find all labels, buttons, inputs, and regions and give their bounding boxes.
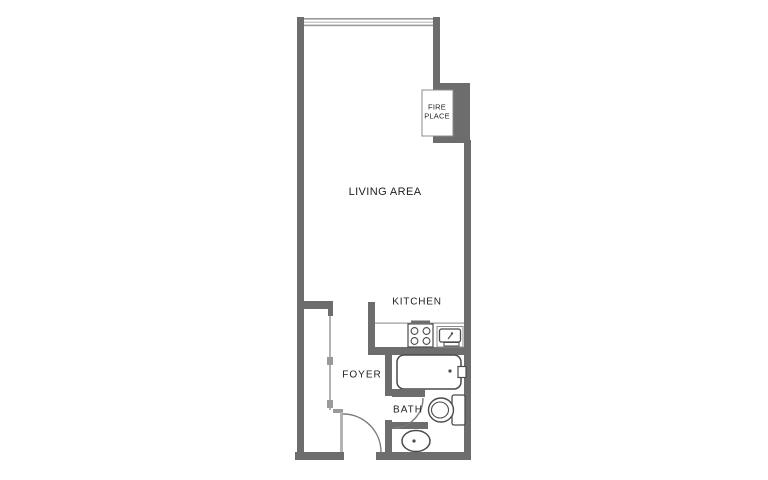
right-wall-upper bbox=[433, 17, 440, 85]
sink-front-ledge bbox=[444, 343, 459, 347]
entry-door-arc bbox=[343, 414, 381, 452]
closet-door-tab-upper bbox=[327, 357, 333, 365]
stove-icon bbox=[408, 321, 433, 348]
left-wall bbox=[297, 17, 304, 460]
bathtub-body bbox=[397, 355, 461, 389]
living-foyer-wall bbox=[297, 301, 333, 309]
floor-plan-drawing bbox=[0, 0, 768, 480]
fireplace-label: FIRE PLACE bbox=[424, 104, 450, 121]
bathroom bbox=[392, 355, 466, 452]
bathtub-faucet bbox=[458, 367, 466, 378]
living-foyer-wall-cap bbox=[328, 309, 333, 316]
foyer-label: FOYER bbox=[342, 370, 381, 381]
closet-doors-icon bbox=[327, 316, 333, 410]
bath-sink-drain bbox=[412, 439, 415, 442]
living-area-label: LIVING AREA bbox=[349, 186, 422, 198]
bath-sink-icon bbox=[402, 431, 430, 452]
burner bbox=[411, 328, 418, 335]
bath-left-wall-lower bbox=[385, 420, 392, 460]
kitchen-bath-wall bbox=[368, 347, 471, 355]
window-top-icon bbox=[304, 18, 433, 27]
window-line-middle bbox=[304, 22, 433, 23]
bottom-wall-left bbox=[295, 452, 344, 460]
burner bbox=[423, 338, 430, 345]
window-line-outer bbox=[304, 18, 433, 20]
kitchen-left-wall bbox=[368, 302, 375, 353]
bath-label: BATH bbox=[393, 405, 423, 416]
stove-back-panel bbox=[411, 321, 430, 325]
bathtub-drain bbox=[448, 369, 451, 372]
bath-left-wall-upper bbox=[385, 352, 392, 396]
entry-door-icon bbox=[333, 409, 381, 452]
bath-sink-bowl bbox=[402, 431, 430, 452]
bath-door-leaf bbox=[392, 389, 425, 397]
floor-plan: LIVING AREA KITCHEN FOYER BATH FIRE PLAC… bbox=[0, 0, 768, 480]
burner bbox=[423, 328, 430, 335]
kitchen-label: KITCHEN bbox=[392, 297, 442, 308]
toilet-icon bbox=[429, 395, 466, 425]
burner bbox=[411, 338, 418, 345]
closet-door-tab-lower bbox=[327, 400, 333, 408]
kitchen-sink-icon bbox=[437, 327, 463, 348]
kitchen-counter bbox=[375, 321, 464, 348]
window-line-inner bbox=[304, 25, 433, 27]
entry-door-leaf bbox=[340, 412, 343, 452]
fireplace-label-line2: PLACE bbox=[424, 112, 450, 121]
bathtub-icon bbox=[397, 355, 466, 389]
sink-basin bbox=[440, 329, 461, 342]
